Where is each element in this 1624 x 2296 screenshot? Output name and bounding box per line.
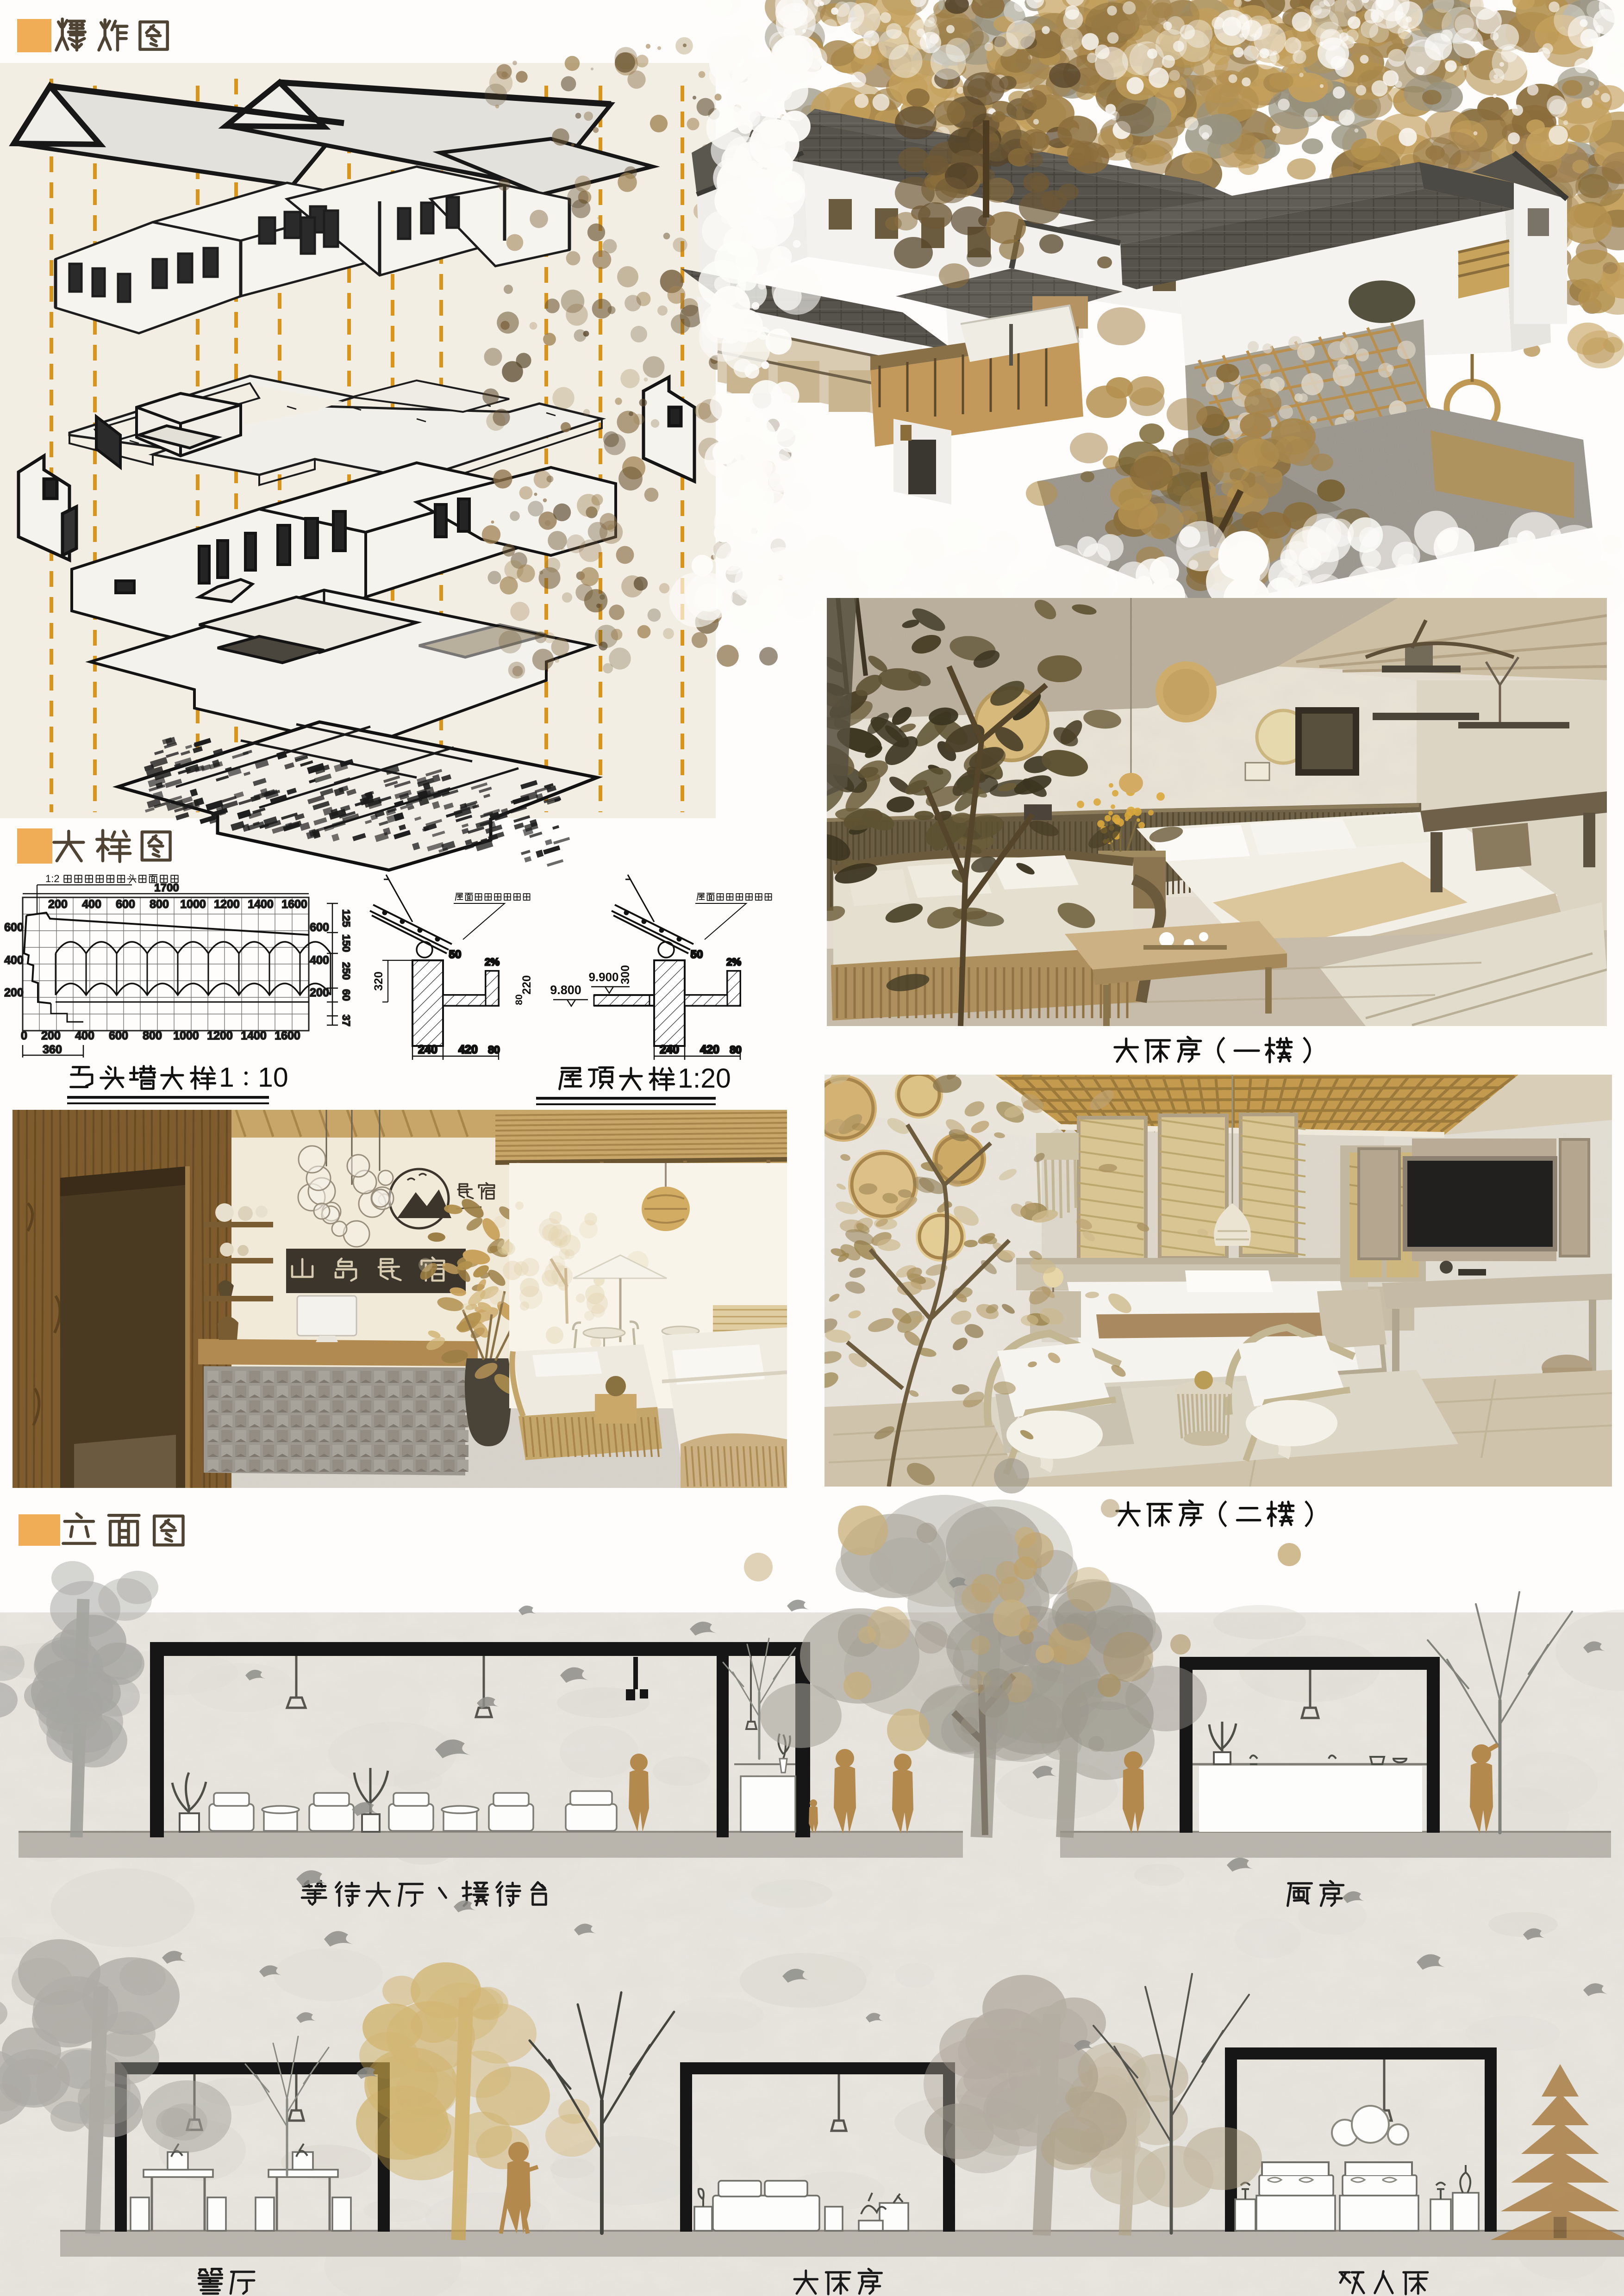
svg-text:1600: 1600 — [275, 1029, 300, 1042]
svg-text:200: 200 — [41, 1029, 61, 1042]
svg-text:80: 80 — [488, 1044, 500, 1056]
svg-text:1400: 1400 — [241, 1029, 267, 1042]
svg-text:800: 800 — [150, 898, 169, 911]
svg-text:400: 400 — [82, 898, 101, 911]
svg-text:1200: 1200 — [214, 898, 240, 911]
svg-text:9.800: 9.800 — [550, 983, 581, 997]
svg-text:10: 10 — [258, 1062, 288, 1093]
svg-text:1000: 1000 — [173, 1029, 199, 1042]
svg-text:240: 240 — [418, 1043, 437, 1056]
svg-text:2%: 2% — [726, 956, 741, 968]
svg-text:400: 400 — [4, 954, 24, 967]
svg-text:600: 600 — [116, 898, 135, 911]
svg-text:300: 300 — [619, 965, 632, 984]
svg-text:600: 600 — [4, 921, 24, 934]
svg-text:1000: 1000 — [180, 898, 206, 911]
svg-text:150: 150 — [340, 934, 352, 952]
svg-text:1400: 1400 — [248, 898, 274, 911]
svg-text:1:20: 1:20 — [678, 1063, 731, 1094]
svg-text:800: 800 — [143, 1029, 162, 1042]
svg-text:1: 1 — [219, 1062, 234, 1093]
svg-text:360: 360 — [43, 1043, 62, 1056]
svg-text:320: 320 — [372, 971, 385, 991]
svg-text:200: 200 — [4, 986, 24, 999]
svg-text:420: 420 — [700, 1043, 719, 1056]
svg-text:420: 420 — [458, 1043, 478, 1056]
svg-text:600: 600 — [310, 921, 329, 934]
svg-text:250: 250 — [340, 962, 352, 980]
svg-text:0: 0 — [21, 1029, 27, 1042]
svg-text:80: 80 — [730, 1044, 742, 1056]
svg-text:50: 50 — [691, 948, 703, 961]
svg-text:1:2: 1:2 — [45, 873, 60, 884]
svg-text:50: 50 — [449, 948, 462, 961]
svg-text:240: 240 — [660, 1043, 679, 1056]
svg-text:37: 37 — [340, 1014, 352, 1027]
svg-text:400: 400 — [75, 1029, 94, 1042]
svg-text:220: 220 — [520, 975, 533, 995]
svg-text:200: 200 — [48, 898, 68, 911]
svg-text:200: 200 — [310, 986, 329, 999]
svg-text:400: 400 — [310, 954, 329, 967]
svg-text:600: 600 — [109, 1029, 128, 1042]
svg-text:1200: 1200 — [207, 1029, 233, 1042]
svg-text:80: 80 — [514, 994, 525, 1005]
svg-text:2%: 2% — [485, 956, 500, 968]
svg-text:125: 125 — [340, 909, 352, 927]
svg-text:9.900: 9.900 — [588, 970, 618, 984]
svg-text:60: 60 — [340, 989, 352, 1001]
svg-text:1600: 1600 — [281, 898, 307, 911]
svg-text:1700: 1700 — [154, 882, 179, 894]
